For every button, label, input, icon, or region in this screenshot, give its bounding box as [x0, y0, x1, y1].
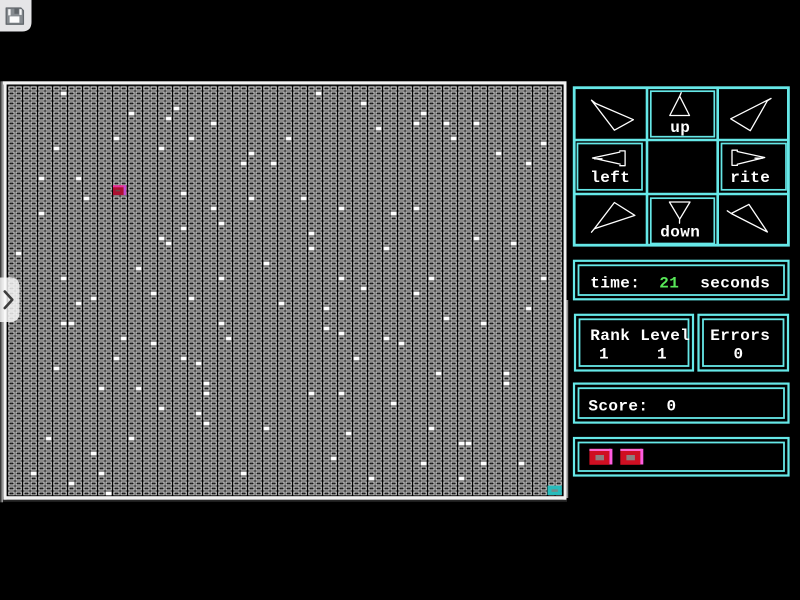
svg-text:seconds: seconds — [700, 275, 770, 293]
svg-text:time:: time: — [590, 275, 640, 293]
svg-text:21: 21 — [659, 275, 679, 293]
svg-text:down: down — [660, 223, 700, 241]
svg-text:0: 0 — [734, 346, 744, 364]
svg-text:rite: rite — [730, 169, 770, 187]
svg-text:0: 0 — [667, 397, 677, 415]
svg-text:Errors: Errors — [710, 327, 770, 345]
svg-text:left: left — [590, 169, 630, 187]
svg-text:Rank Level: Rank Level — [590, 327, 690, 345]
svg-text:Score:: Score: — [588, 397, 648, 415]
svg-text:1: 1 — [657, 346, 667, 364]
svg-text:1: 1 — [599, 346, 609, 364]
svg-text:up: up — [670, 119, 690, 137]
